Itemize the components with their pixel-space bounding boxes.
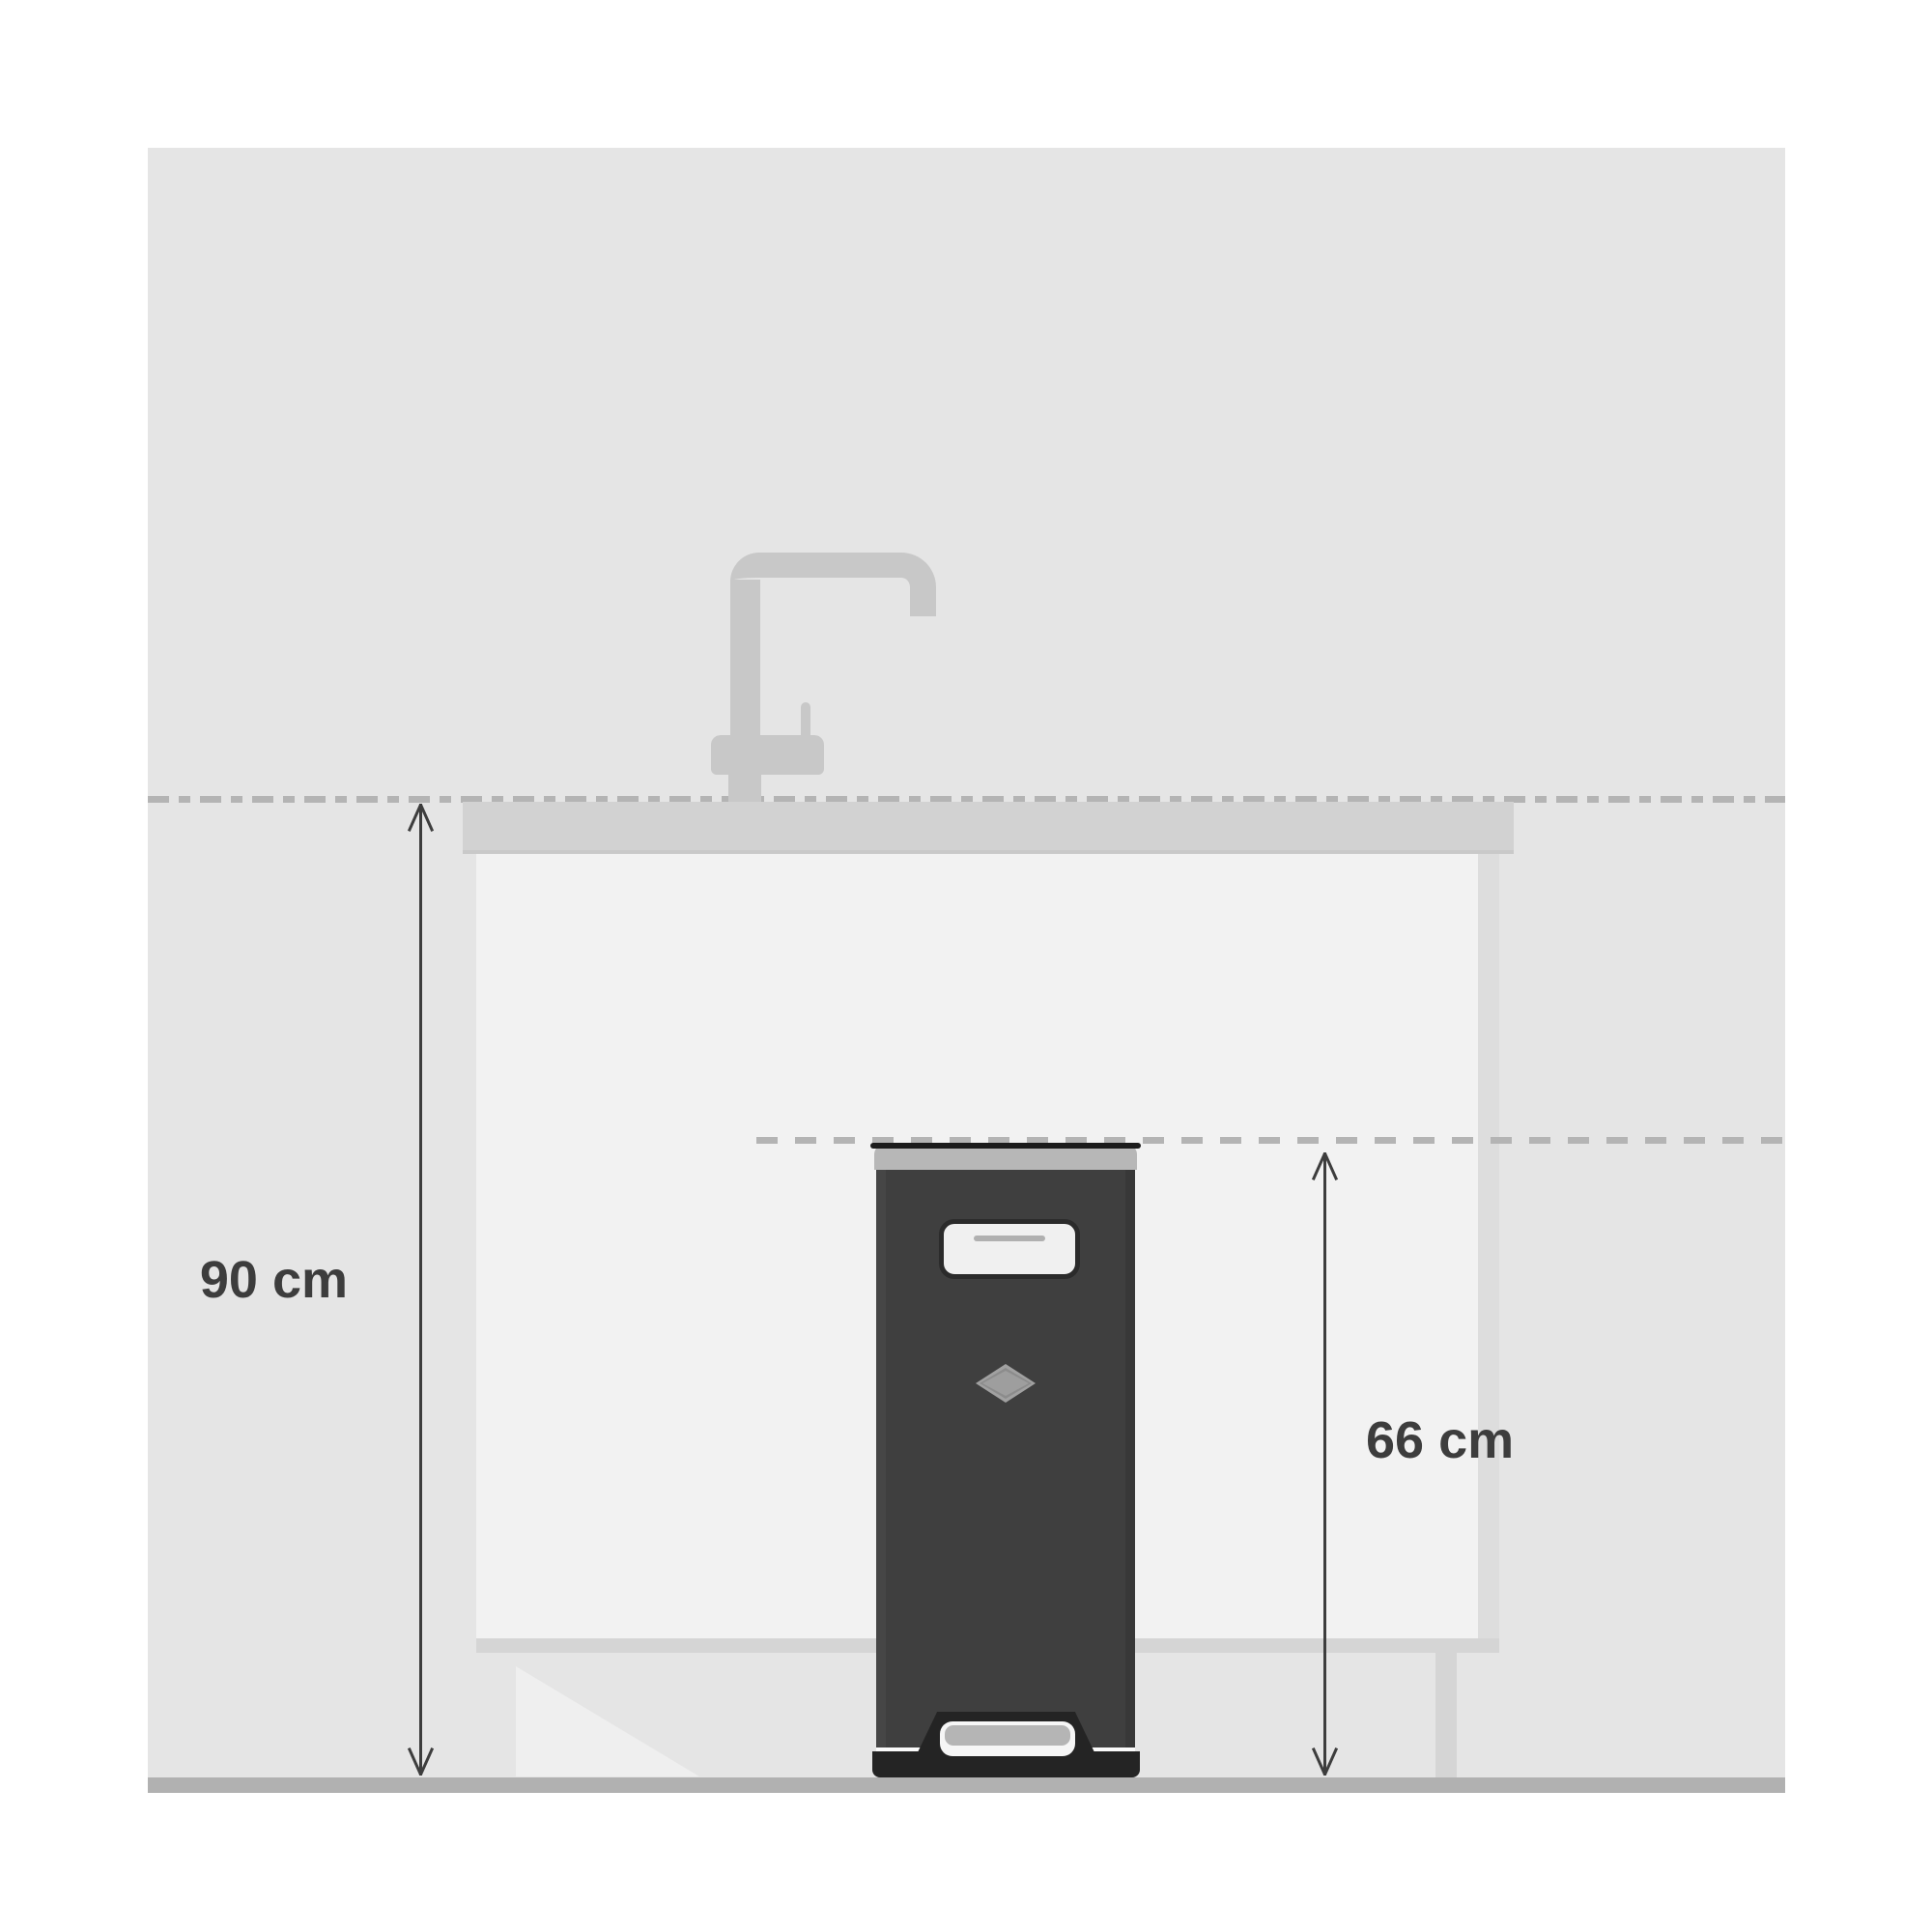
faucet-base (711, 735, 824, 775)
kitchen-bin-height-diagram: 90 cm 66 cm (0, 0, 1932, 1932)
faucet-spout-arm (730, 553, 936, 616)
pedal-bin (870, 1143, 1141, 1777)
bin-pedal-foot-plate (940, 1721, 1075, 1756)
dimension-label-counter-height: 90 cm (145, 1254, 348, 1306)
counter-top (463, 802, 1514, 854)
floor-line (148, 1777, 1785, 1793)
bin-diamond-core (982, 1371, 1029, 1396)
dimension-arrow-90-shaft (419, 804, 422, 1776)
dimension-label-bin-height: 66 cm (1366, 1414, 1578, 1466)
bin-label-plate-line (974, 1236, 1045, 1241)
bin-pedal-foot-pad (945, 1725, 1070, 1746)
bin-lid-rim (870, 1143, 1141, 1149)
cabinet-right-edge-shadow (1478, 854, 1499, 1638)
cabinet-leg (1435, 1653, 1457, 1777)
dimension-arrow-66-shaft (1323, 1152, 1326, 1776)
bin-label-plate (939, 1219, 1080, 1279)
faucet-handle (801, 702, 810, 739)
faucet-stem (728, 771, 761, 805)
